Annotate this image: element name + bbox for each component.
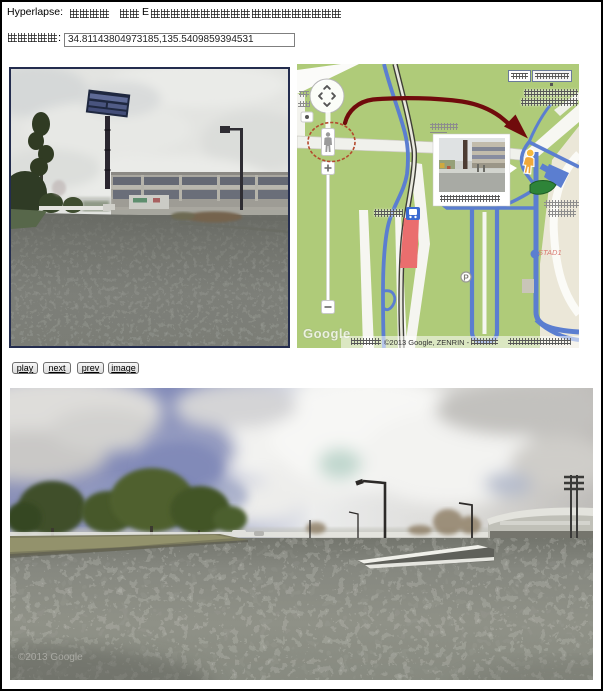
svg-text:STAD1: STAD1: [538, 248, 562, 257]
svg-text:©2013 Google: ©2013 Google: [18, 652, 83, 663]
svg-text:©2013 Google, ZENRIN -: ©2013 Google, ZENRIN -: [384, 338, 470, 347]
svg-text:P: P: [463, 274, 469, 283]
